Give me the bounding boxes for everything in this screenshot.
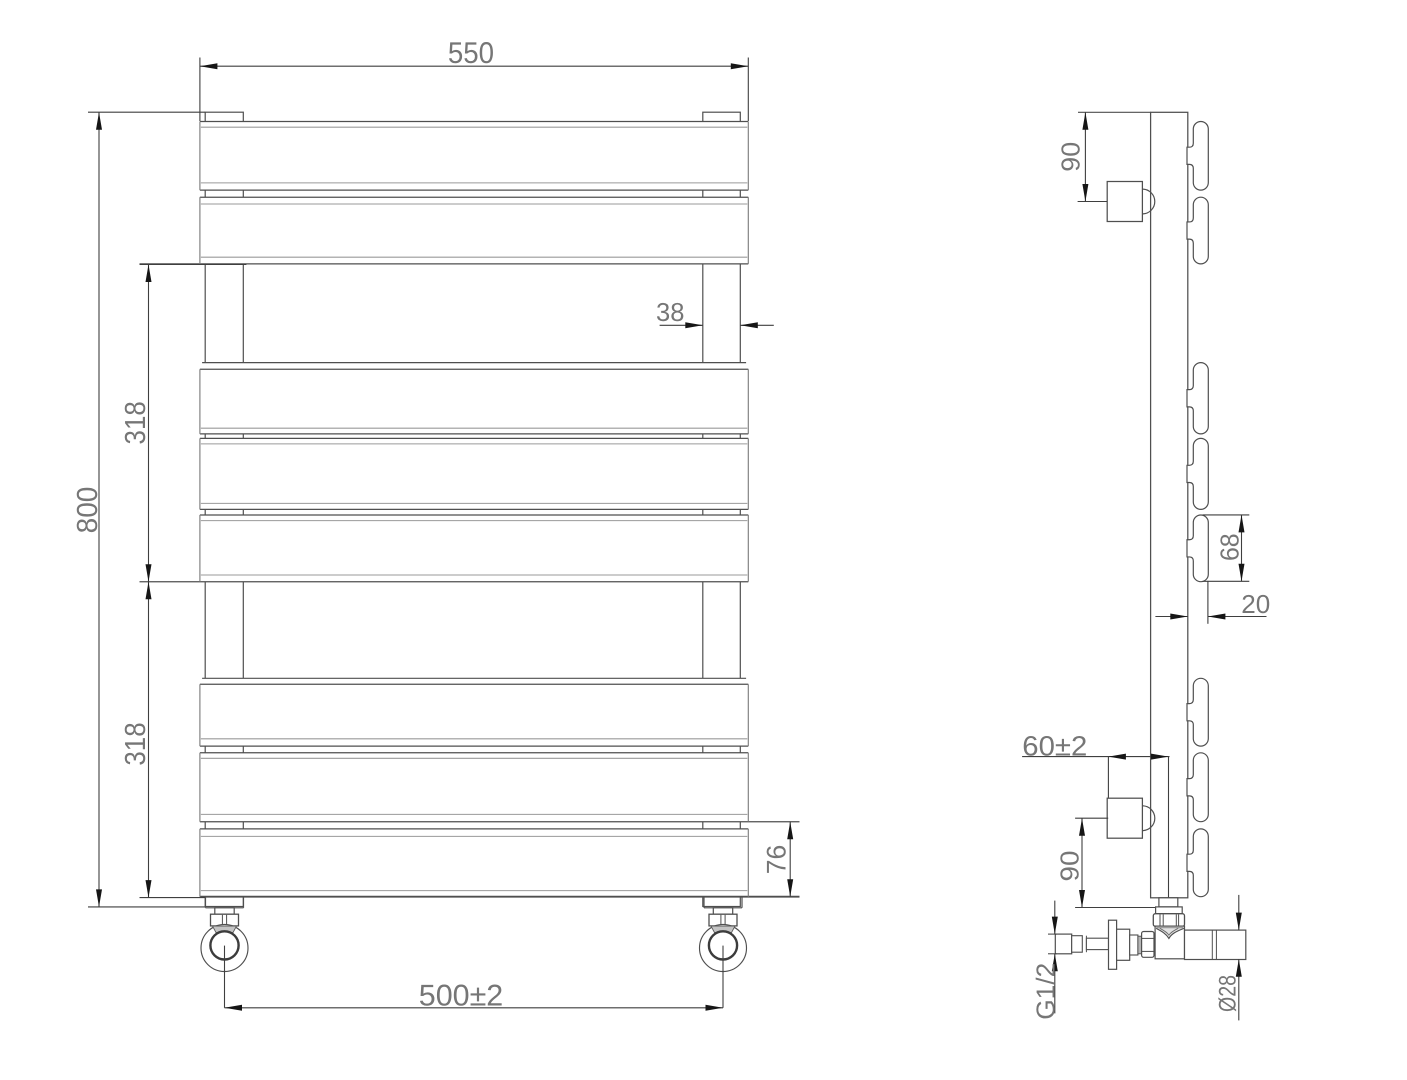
svg-text:G1/2: G1/2 xyxy=(1030,963,1060,1020)
svg-text:318: 318 xyxy=(120,722,152,765)
svg-text:90: 90 xyxy=(1055,142,1085,172)
svg-text:500±2: 500±2 xyxy=(419,979,504,1012)
svg-text:68: 68 xyxy=(1214,533,1244,561)
svg-text:550: 550 xyxy=(448,37,494,70)
svg-text:90: 90 xyxy=(1055,851,1085,882)
svg-text:60±2: 60±2 xyxy=(1022,731,1087,762)
svg-text:38: 38 xyxy=(656,297,684,327)
svg-text:800: 800 xyxy=(72,487,104,534)
svg-text:76: 76 xyxy=(762,845,792,875)
svg-text:318: 318 xyxy=(120,401,152,444)
svg-text:20: 20 xyxy=(1241,589,1270,619)
svg-text:Ø28: Ø28 xyxy=(1214,975,1241,1012)
